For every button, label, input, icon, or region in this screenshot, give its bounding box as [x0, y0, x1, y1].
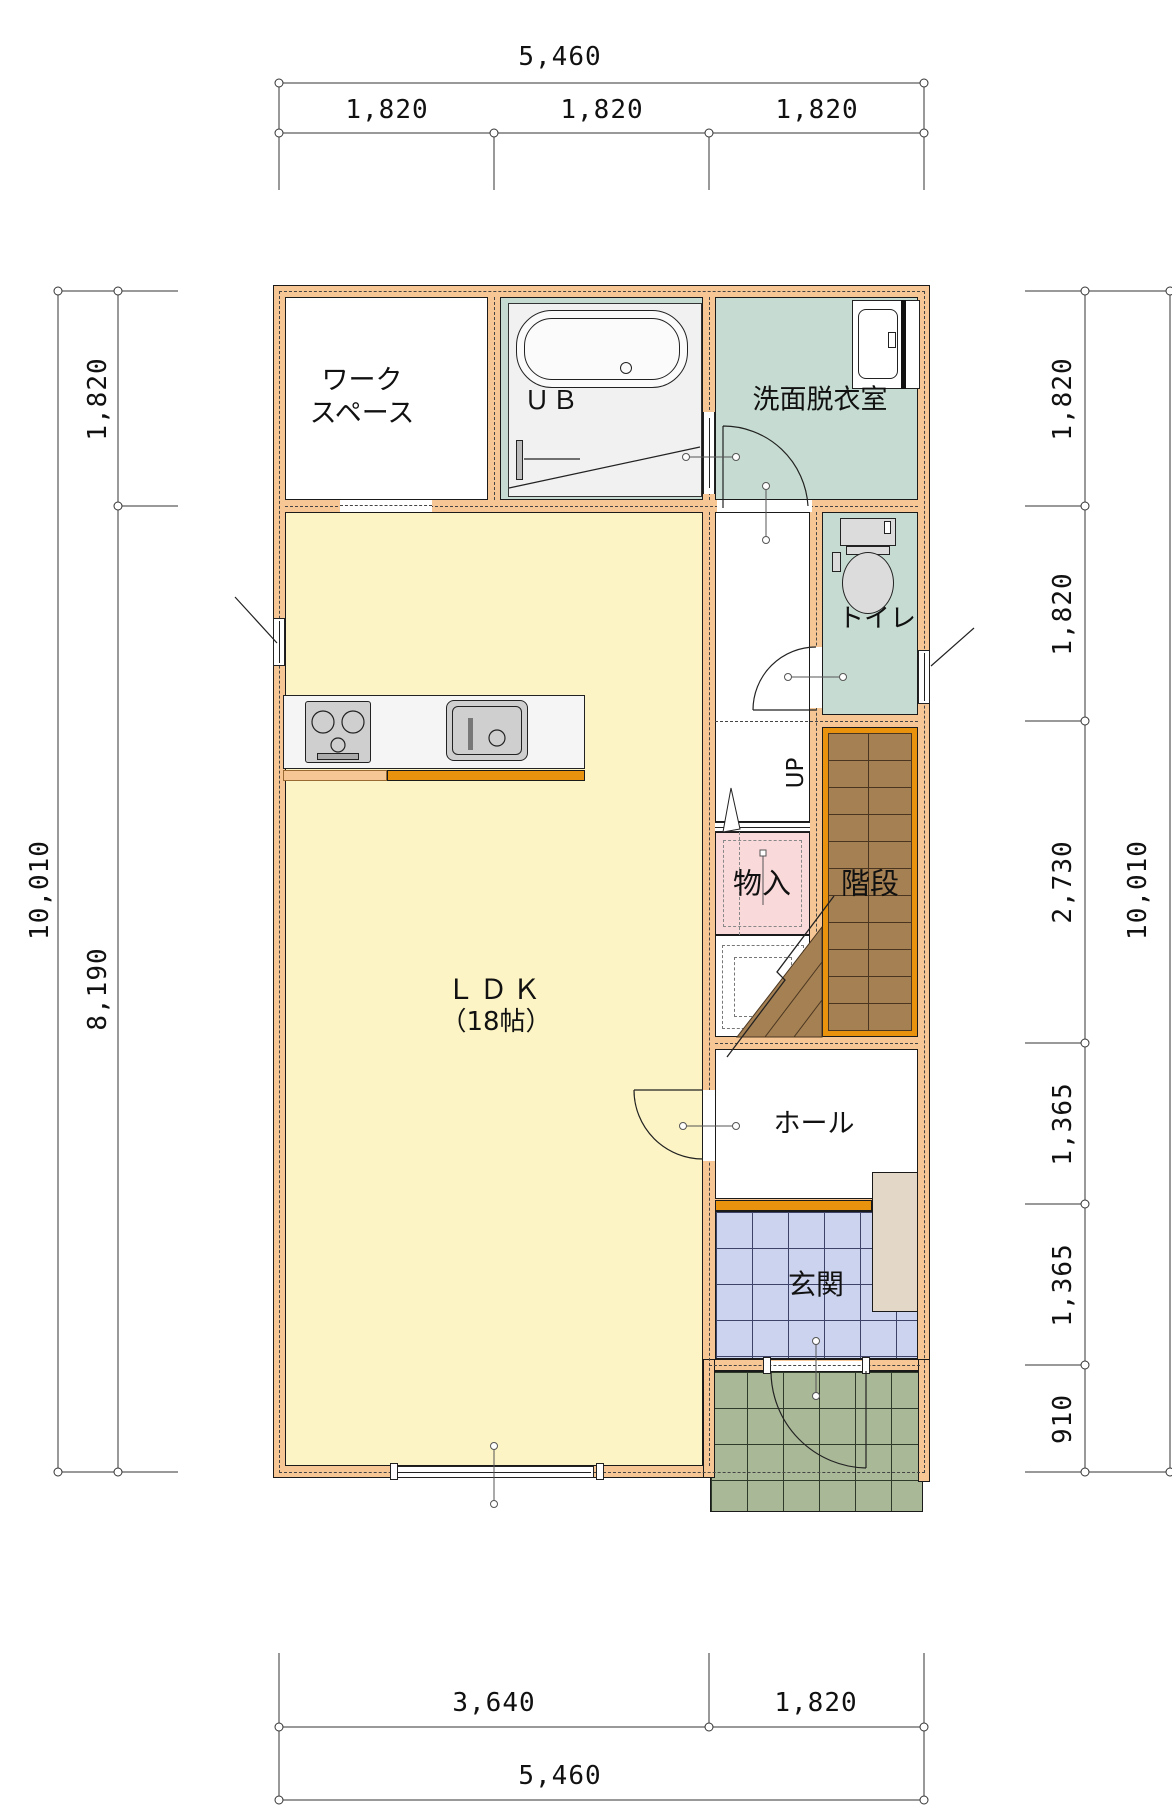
entrance-label: 玄関 [788, 1268, 844, 1302]
toilet-label: トイレ [838, 604, 916, 636]
ldk-label-size: （18帖） [440, 1007, 551, 1039]
dim-top-total: 5,460 [518, 42, 601, 72]
dim-bottom-total: 5,460 [518, 1761, 601, 1791]
ldk-label-name: ＬＤＫ [440, 973, 551, 1007]
washroom-label: 洗面脱衣室 [753, 385, 888, 418]
dim-top-seg1: 1,820 [345, 95, 428, 125]
ldk-label: ＬＤＫ （18帖） [440, 973, 551, 1039]
dim-right-total: 10,010 [1123, 840, 1153, 940]
dim-right-seg1: 1,820 [1048, 357, 1078, 440]
bath-label: ＵＢ [524, 386, 580, 418]
dim-left-seg2: 8,190 [83, 947, 113, 1030]
storage-label: 物入 [733, 866, 791, 901]
dim-right-seg5: 1,365 [1048, 1243, 1078, 1326]
dim-left-total: 10,010 [25, 840, 55, 940]
workspace-label: ワーク スペース [310, 365, 415, 431]
dim-bottom-seg2: 1,820 [774, 1688, 857, 1718]
workspace-label-line2: スペース [310, 398, 415, 431]
dim-right-seg2: 1,820 [1048, 572, 1078, 655]
hall-label: ホール [774, 1109, 855, 1142]
dim-right-seg3: 2,730 [1048, 840, 1078, 923]
dim-top-seg3: 1,820 [775, 95, 858, 125]
stairs-label: 階段 [841, 866, 899, 901]
dim-right-seg4: 1,365 [1048, 1082, 1078, 1165]
dim-top-seg2: 1,820 [560, 95, 643, 125]
plan-linework [0, 0, 1172, 1811]
floorplan-canvas: ワーク スペース ＵＢ 洗面脱衣室 トイレ ＬＤＫ （18帖） 物入 階段 UP… [0, 0, 1172, 1811]
stairs-up-label: UP [783, 758, 809, 789]
dim-bottom-seg1: 3,640 [452, 1688, 535, 1718]
dim-right-seg6: 910 [1048, 1394, 1078, 1444]
workspace-label-line1: ワーク [310, 365, 415, 398]
dim-left-seg1: 1,820 [83, 357, 113, 440]
